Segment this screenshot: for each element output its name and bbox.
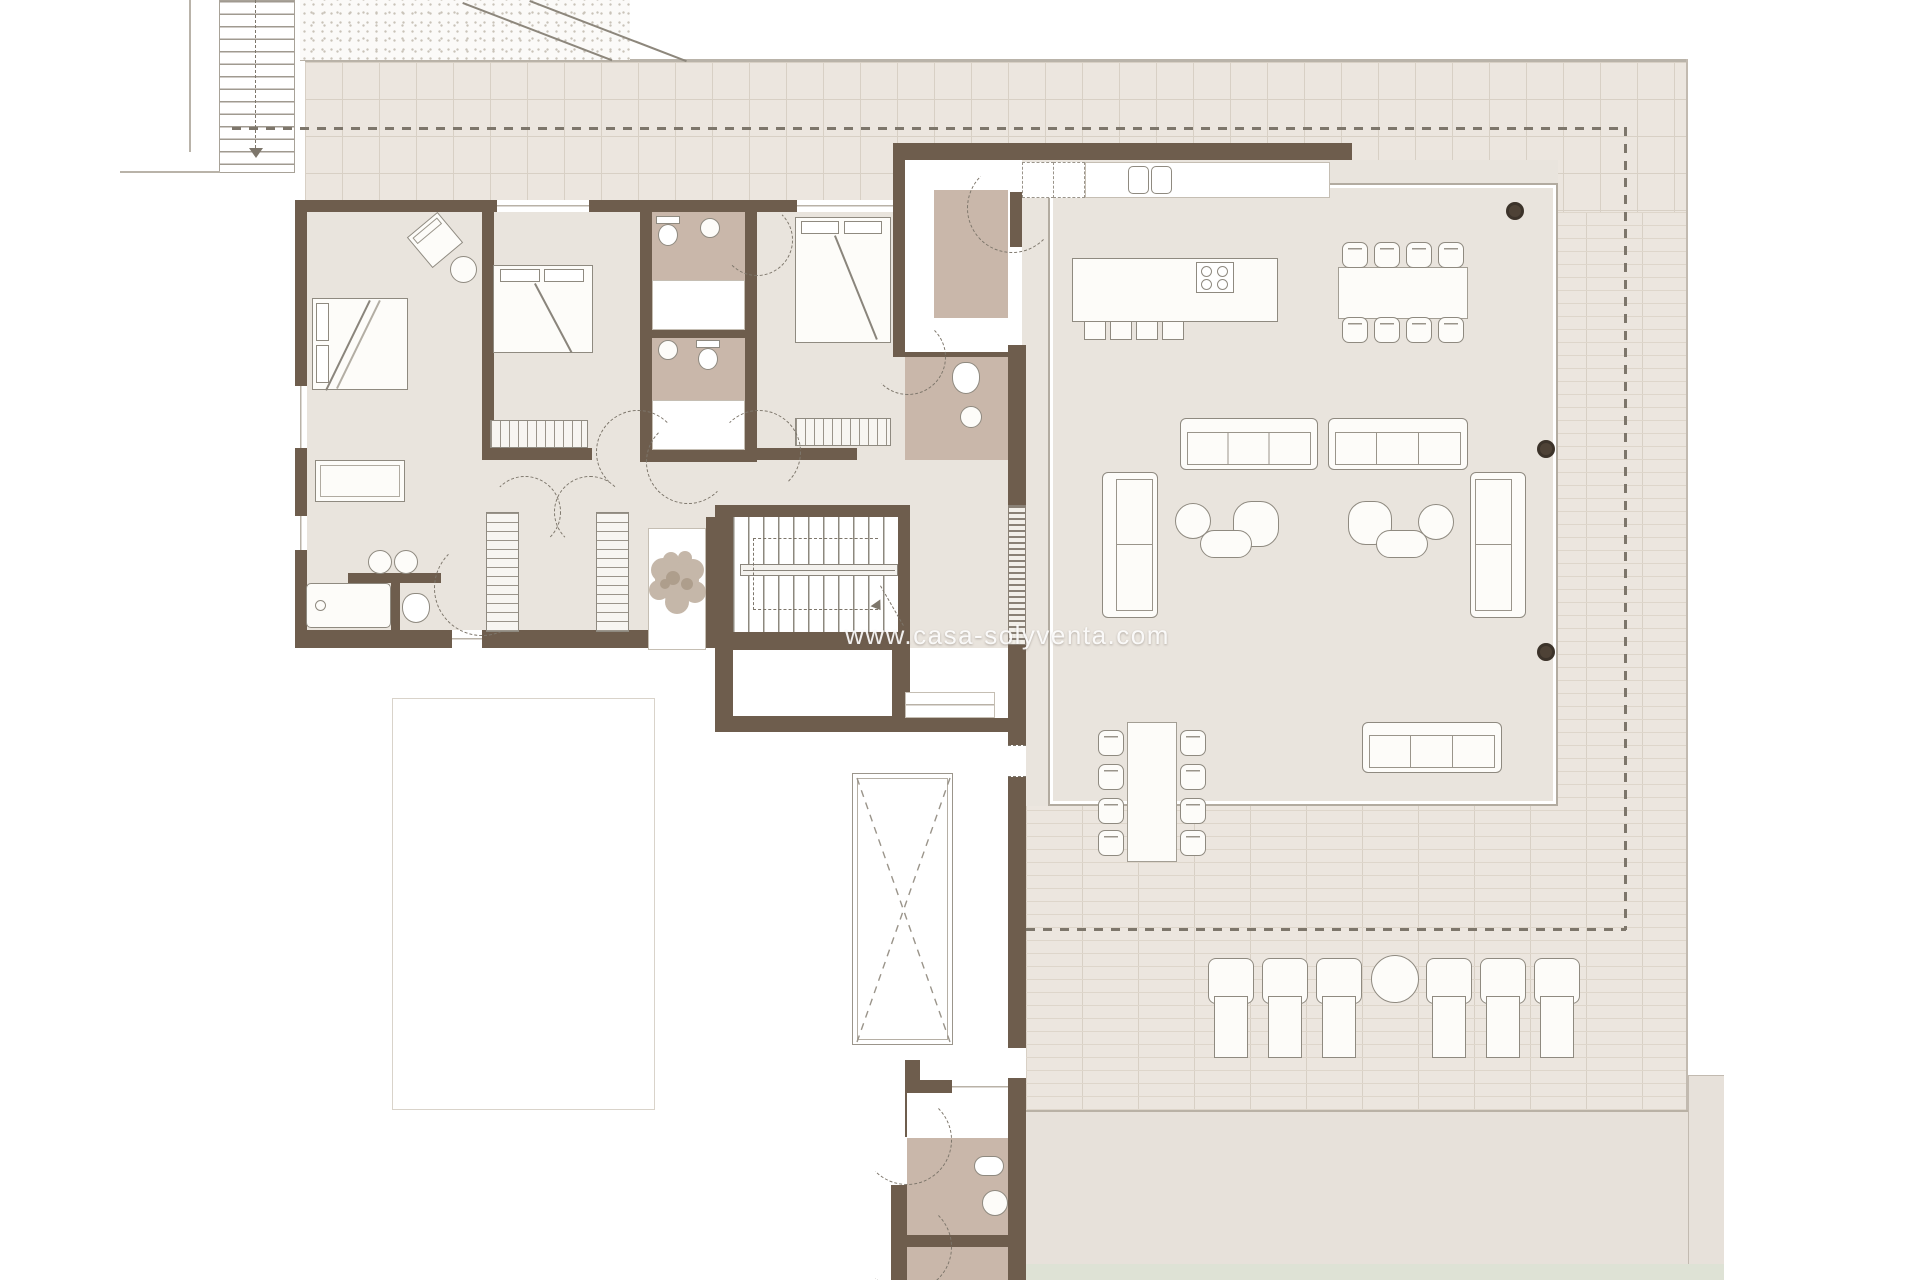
wall bbox=[1008, 648, 1026, 1280]
stair-center-dash bbox=[255, 0, 257, 148]
burner bbox=[1217, 266, 1228, 277]
sun-lounger-body bbox=[1540, 996, 1574, 1058]
door-arc bbox=[554, 476, 626, 548]
sofa-icon bbox=[1470, 472, 1526, 618]
window bbox=[295, 386, 307, 448]
pillow bbox=[316, 345, 329, 383]
hob-icon bbox=[1196, 262, 1234, 293]
sofa-icon bbox=[1102, 472, 1158, 618]
wall bbox=[652, 330, 745, 338]
dresser-icon bbox=[315, 460, 405, 502]
door-opening bbox=[1008, 745, 1026, 777]
kitchen-sink-icon bbox=[1128, 166, 1174, 195]
pool-area bbox=[1026, 1112, 1688, 1280]
chair-icon bbox=[1374, 242, 1400, 268]
wall bbox=[391, 583, 400, 630]
chair-icon bbox=[1180, 730, 1206, 756]
sofa-icon bbox=[1328, 418, 1468, 470]
wall bbox=[295, 630, 452, 648]
planter-tree-icon bbox=[637, 540, 717, 630]
lower-floor-outline bbox=[392, 698, 655, 1110]
terrace-right-edge bbox=[1686, 59, 1688, 1112]
double-bed-icon bbox=[795, 217, 891, 343]
skylight-box bbox=[852, 773, 953, 1045]
kitchen-counter bbox=[1085, 162, 1330, 198]
stair-side-line bbox=[189, 0, 191, 152]
sun-lounger-body bbox=[1432, 996, 1466, 1058]
storage-room bbox=[733, 650, 892, 716]
toilet-icon bbox=[696, 340, 720, 348]
overhang-dash-right bbox=[1624, 127, 1627, 930]
sofa-seats bbox=[1369, 735, 1495, 768]
pillow bbox=[544, 269, 584, 282]
door-arc bbox=[717, 410, 801, 494]
kitchen-island-icon bbox=[1072, 258, 1278, 322]
toilet-icon bbox=[952, 362, 980, 394]
dresser-inner bbox=[320, 465, 400, 497]
chair-icon bbox=[1098, 730, 1124, 756]
burner bbox=[1217, 279, 1228, 290]
bathtub-icon bbox=[306, 583, 391, 628]
chair-icon bbox=[1406, 317, 1432, 343]
column-icon bbox=[1537, 643, 1555, 661]
tub-drain bbox=[315, 600, 326, 611]
overhang-dash-bottom bbox=[1026, 928, 1626, 931]
overhang-dash-top bbox=[232, 127, 1626, 130]
toilet-bowl bbox=[658, 224, 678, 246]
bed-fold-line bbox=[325, 300, 370, 391]
stair-arrow bbox=[249, 148, 263, 158]
washbasin-icon bbox=[960, 406, 982, 428]
wall bbox=[893, 143, 1352, 160]
washbasin-icon bbox=[700, 218, 720, 238]
wall bbox=[482, 630, 648, 648]
coffee-table-icon bbox=[1376, 530, 1428, 558]
sofa-seats bbox=[1116, 479, 1153, 611]
burner bbox=[1201, 279, 1212, 290]
burner bbox=[1201, 266, 1212, 277]
coffee-table-icon bbox=[1200, 530, 1252, 558]
chair-icon bbox=[1098, 830, 1124, 856]
watermark: www.casa-solyventa.com bbox=[845, 620, 1145, 651]
double-bed-icon bbox=[312, 298, 408, 390]
sun-lounger-body bbox=[1486, 996, 1520, 1058]
wall bbox=[348, 573, 441, 583]
pool-area-ext bbox=[1688, 1075, 1724, 1280]
sink-bowl bbox=[1151, 166, 1172, 194]
wall bbox=[482, 448, 592, 460]
chair-icon bbox=[1438, 317, 1464, 343]
sofa-seats bbox=[1335, 432, 1461, 465]
dining-table-icon bbox=[1338, 267, 1468, 319]
washbasin-icon bbox=[974, 1156, 1004, 1176]
door-arc bbox=[862, 1095, 952, 1185]
chair-icon bbox=[1406, 242, 1432, 268]
bar-stool-icon bbox=[1110, 321, 1132, 340]
chair-icon bbox=[1438, 242, 1464, 268]
chair-icon bbox=[1098, 764, 1124, 790]
bed-fold-line bbox=[534, 283, 572, 353]
window bbox=[905, 692, 995, 718]
pillow bbox=[316, 303, 329, 341]
pillow bbox=[844, 221, 882, 234]
wall bbox=[905, 1080, 952, 1093]
sink-bowl bbox=[1128, 166, 1149, 194]
floor-plan: www.casa-solyventa.com bbox=[0, 0, 1920, 1280]
wardrobe-icon bbox=[795, 418, 891, 446]
pillow bbox=[801, 221, 839, 234]
shower-icon bbox=[652, 280, 745, 330]
chair-icon bbox=[1180, 764, 1206, 790]
sun-lounger-body bbox=[1322, 996, 1356, 1058]
gravel-strip bbox=[300, 0, 630, 61]
bar-stool-icon bbox=[1136, 321, 1158, 340]
washbasin-icon bbox=[368, 550, 392, 574]
door-opening bbox=[1008, 1048, 1026, 1078]
bar-stool-icon bbox=[1084, 321, 1106, 340]
door-arc bbox=[489, 476, 561, 548]
pool-water-strip bbox=[1026, 1264, 1724, 1280]
washbasin-icon bbox=[394, 550, 418, 574]
chair-icon bbox=[1342, 317, 1368, 343]
window bbox=[952, 1080, 1008, 1093]
sofa-seats bbox=[1475, 479, 1512, 611]
toilet-icon bbox=[982, 1190, 1008, 1216]
chair-icon bbox=[1098, 798, 1124, 824]
chair-icon bbox=[1342, 242, 1368, 268]
chair-icon bbox=[1180, 798, 1206, 824]
washbasin-icon bbox=[658, 340, 678, 360]
wardrobe-icon bbox=[490, 420, 588, 448]
toilet-bowl bbox=[698, 348, 718, 370]
toilet-icon bbox=[656, 216, 680, 224]
column-icon bbox=[1537, 440, 1555, 458]
door-arc bbox=[967, 163, 1057, 253]
bed-fold-line bbox=[336, 300, 380, 389]
door-arc bbox=[870, 319, 946, 395]
window bbox=[295, 516, 307, 550]
door-arc bbox=[721, 204, 793, 276]
window bbox=[797, 200, 895, 212]
stair-side-line bbox=[120, 171, 220, 173]
sofa-icon bbox=[1362, 722, 1502, 773]
chair-icon bbox=[1374, 317, 1400, 343]
pillow bbox=[500, 269, 540, 282]
sun-lounger-body bbox=[1214, 996, 1248, 1058]
skylight-cross-icon bbox=[853, 774, 954, 1046]
sofa-icon bbox=[1180, 418, 1318, 470]
side-ball-table-icon bbox=[1371, 955, 1419, 1003]
chair-icon bbox=[1180, 830, 1206, 856]
double-bed-icon bbox=[493, 265, 593, 353]
stair-walk-dash bbox=[753, 538, 878, 610]
wall bbox=[733, 718, 1008, 732]
bar-stool-icon bbox=[1162, 321, 1184, 340]
kitchen-cabinet-dashed bbox=[1053, 162, 1085, 198]
toilet-icon bbox=[402, 593, 430, 623]
side-table-icon bbox=[450, 256, 477, 283]
bed-fold-line bbox=[834, 235, 877, 339]
column-icon bbox=[1506, 202, 1524, 220]
sun-lounger-body bbox=[1268, 996, 1302, 1058]
outdoor-dining-table-icon bbox=[1127, 722, 1177, 862]
window bbox=[497, 200, 589, 212]
sofa-seats bbox=[1187, 432, 1311, 465]
